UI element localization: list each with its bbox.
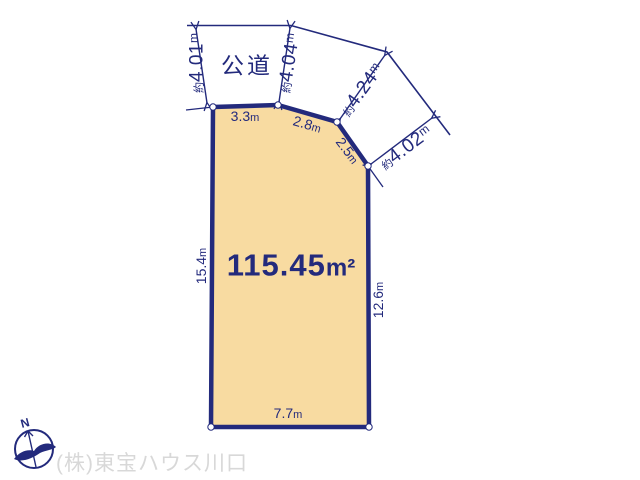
dimension-unit: m — [187, 33, 201, 43]
edge-unit: m — [293, 409, 302, 421]
edge-unit: m — [374, 282, 386, 291]
approx-prefix: 約 — [194, 82, 206, 93]
compass-icon — [14, 430, 56, 468]
vertex-marker — [210, 104, 216, 110]
land-plot-diagram: 公道 約4.01m 約4.04m 約4.24m 約4.02m 3.3m 2.8m… — [0, 0, 640, 480]
vertex-marker — [275, 102, 281, 108]
approx-prefix: 約 — [281, 81, 295, 94]
edge-value: 7.7 — [274, 405, 293, 421]
dimension-unit: m — [282, 32, 297, 44]
vertex-marker — [366, 424, 372, 430]
edge-value: 15.4 — [193, 257, 209, 284]
area-unit: m² — [326, 255, 355, 282]
company-watermark: (株)東宝ハウス川口 — [56, 447, 248, 477]
edge-unit: m — [197, 248, 209, 257]
edge-length-top-left: 3.3m — [231, 109, 260, 125]
edge-length-bottom: 7.7m — [274, 406, 303, 422]
area-value: 115.45 — [227, 248, 326, 283]
plot-area-label: 115.45m² — [227, 250, 355, 281]
edge-value: 12.6 — [370, 291, 386, 318]
edge-length-right: 12.6m — [371, 282, 387, 318]
edge-unit: m — [250, 112, 259, 124]
edge-length-left: 15.4m — [194, 248, 210, 284]
extension-line-top-left — [186, 107, 213, 110]
vertex-marker — [208, 424, 214, 430]
vertex-marker — [365, 163, 371, 169]
edge-value: 3.3 — [231, 108, 250, 124]
road-label: 公道 — [221, 55, 273, 78]
vertex-marker — [334, 119, 340, 125]
road-width-label-4-01: 約4.01m — [188, 33, 207, 93]
diagram-canvas — [0, 0, 640, 480]
dimension-value: 4.01 — [187, 43, 208, 82]
